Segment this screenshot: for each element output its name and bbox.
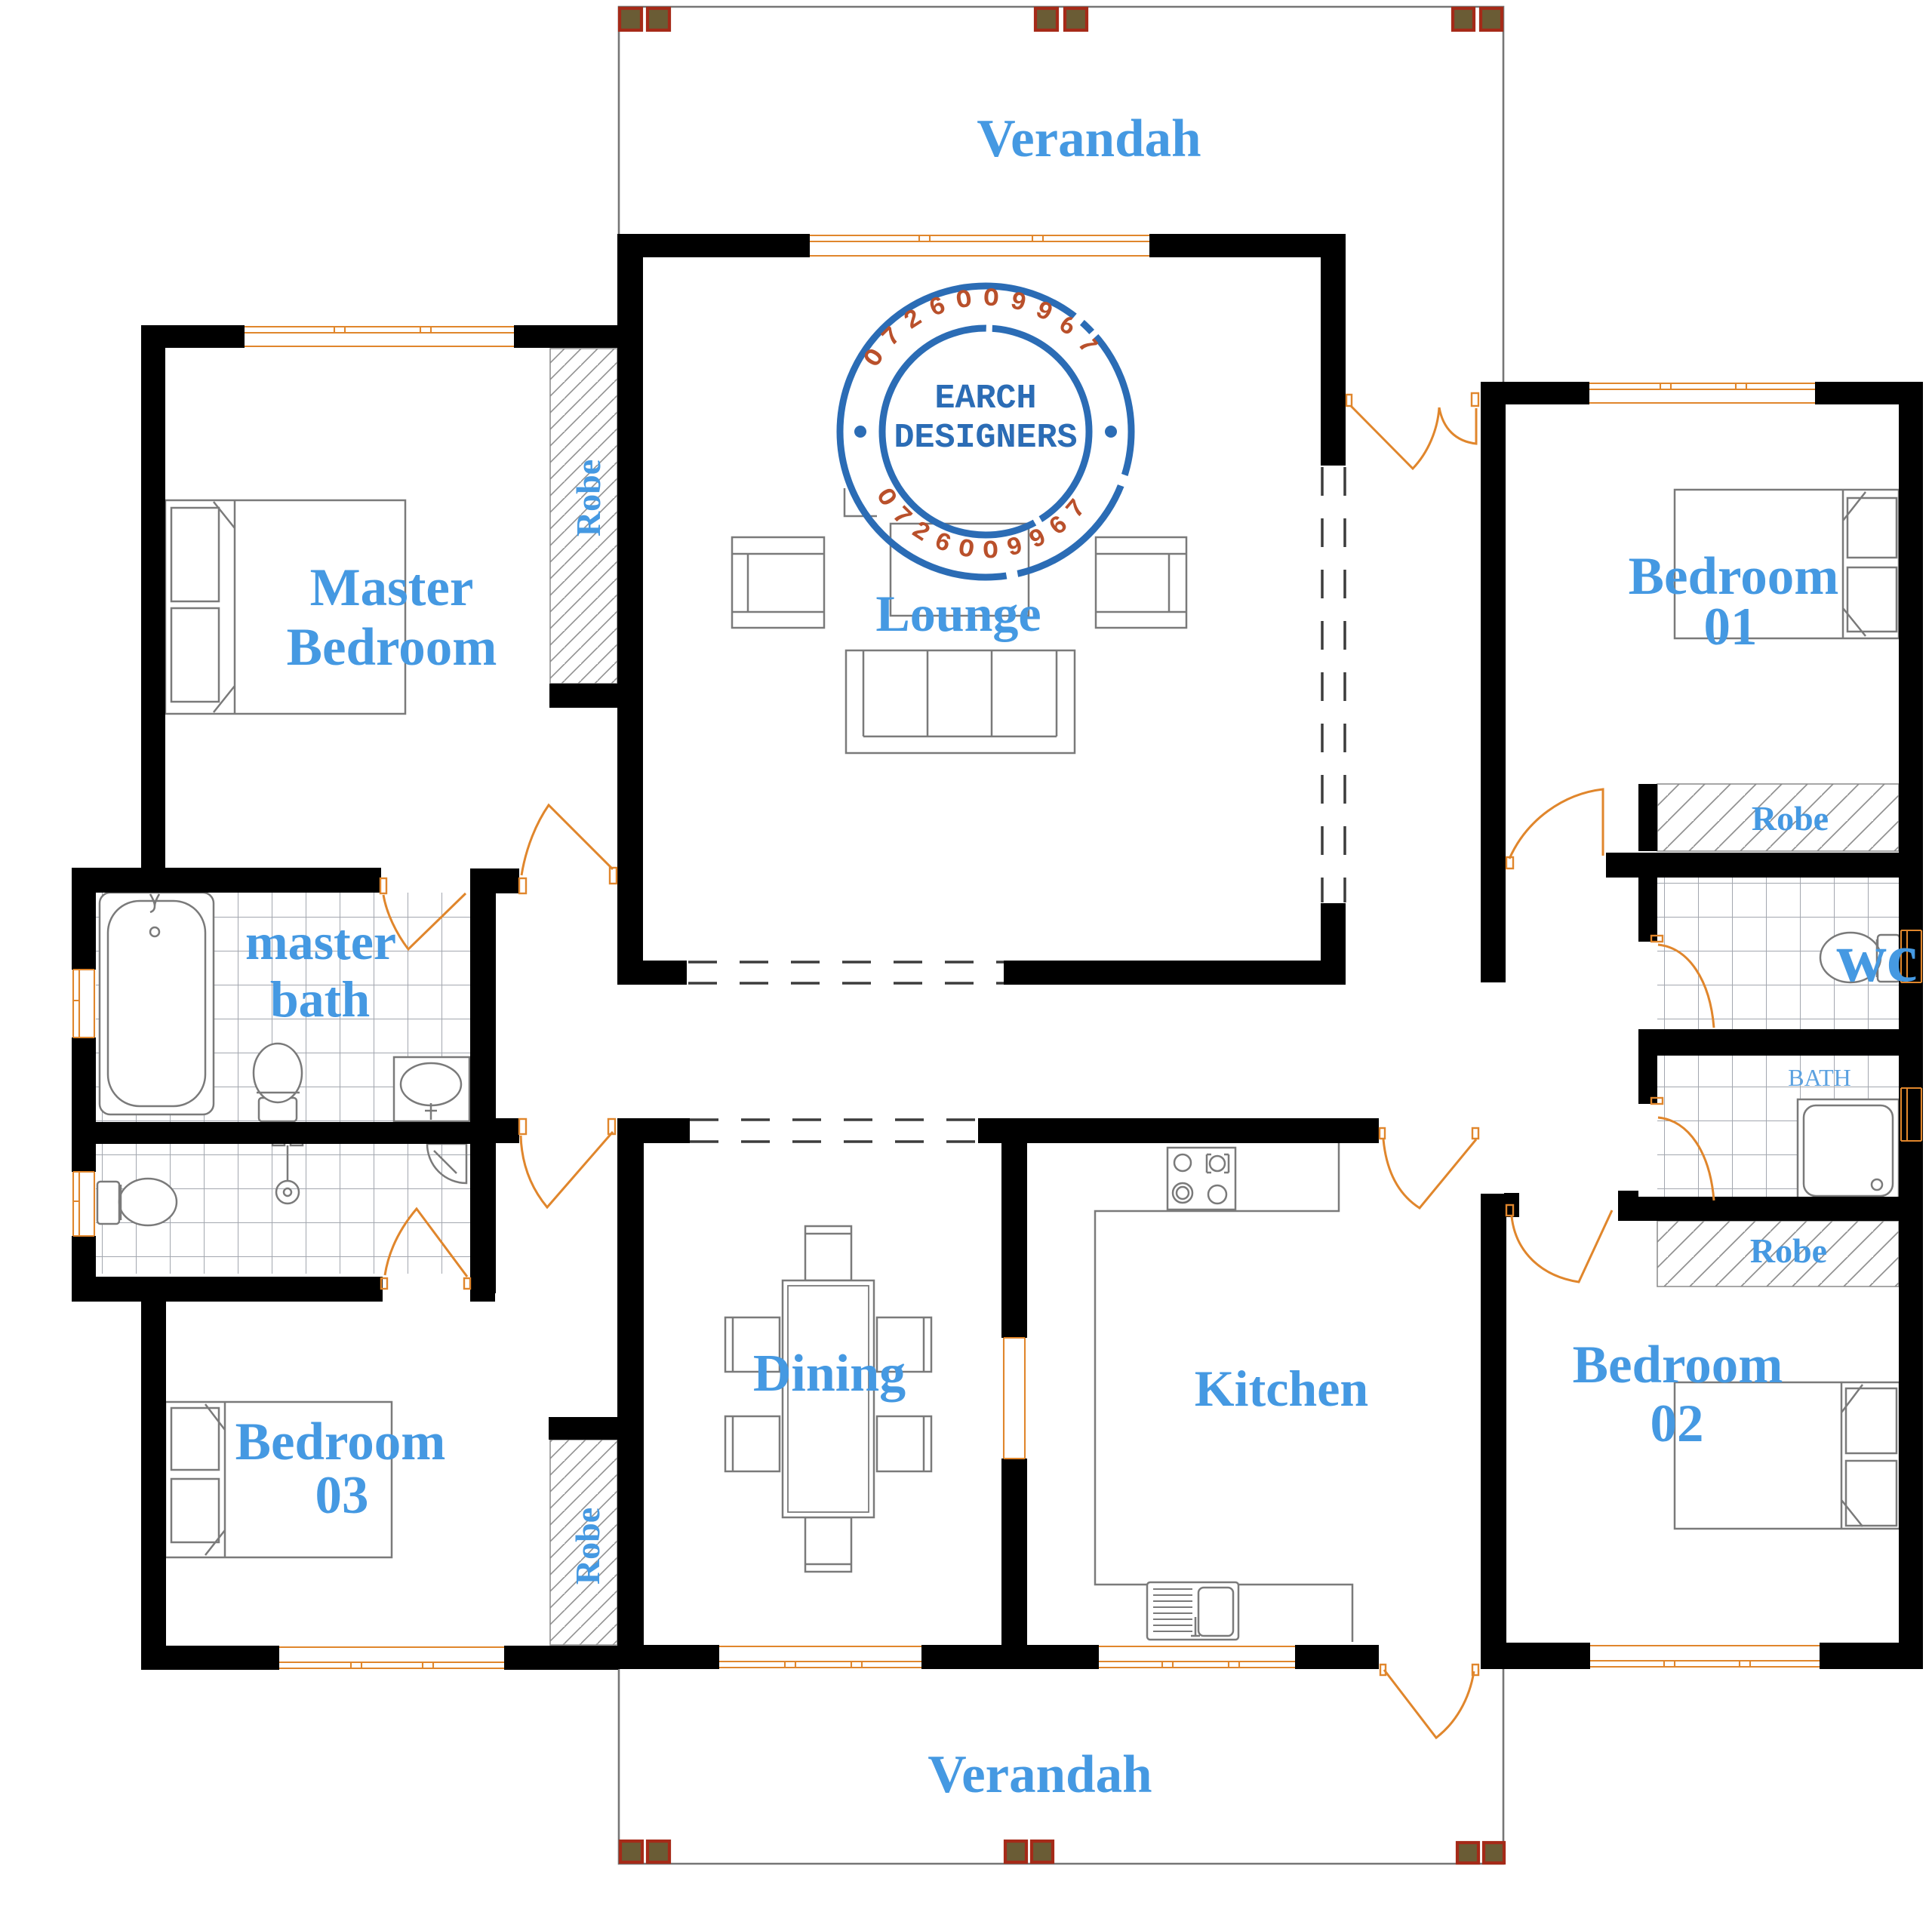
svg-text:BATH: BATH	[1788, 1064, 1851, 1091]
svg-text:01: 01	[1704, 598, 1758, 656]
svg-text:EARCH: EARCH	[934, 380, 1036, 418]
svg-text:Lounge: Lounge	[875, 585, 1041, 642]
svg-text:Robe: Robe	[1752, 799, 1829, 838]
svg-text:Kitchen: Kitchen	[1195, 1360, 1368, 1417]
svg-text:Bedroom: Bedroom	[1573, 1336, 1783, 1394]
svg-text:wc: wc	[1836, 919, 1917, 996]
svg-text:bath: bath	[270, 970, 370, 1028]
svg-text:Verandah: Verandah	[928, 1745, 1152, 1804]
svg-text:Bedroom: Bedroom	[235, 1413, 446, 1471]
svg-text:02: 02	[1651, 1394, 1704, 1453]
svg-text:Robe: Robe	[568, 1508, 607, 1585]
svg-text:DESIGNERS: DESIGNERS	[894, 419, 1077, 457]
svg-text:Robe: Robe	[569, 460, 608, 536]
svg-text:Robe: Robe	[1750, 1231, 1827, 1270]
svg-text:master: master	[245, 913, 396, 970]
svg-text:Master: Master	[310, 558, 474, 617]
svg-text:Bedroom: Bedroom	[287, 618, 497, 677]
svg-text:Dining: Dining	[753, 1345, 906, 1403]
svg-text:03: 03	[315, 1466, 369, 1525]
svg-text:Verandah: Verandah	[977, 109, 1201, 168]
